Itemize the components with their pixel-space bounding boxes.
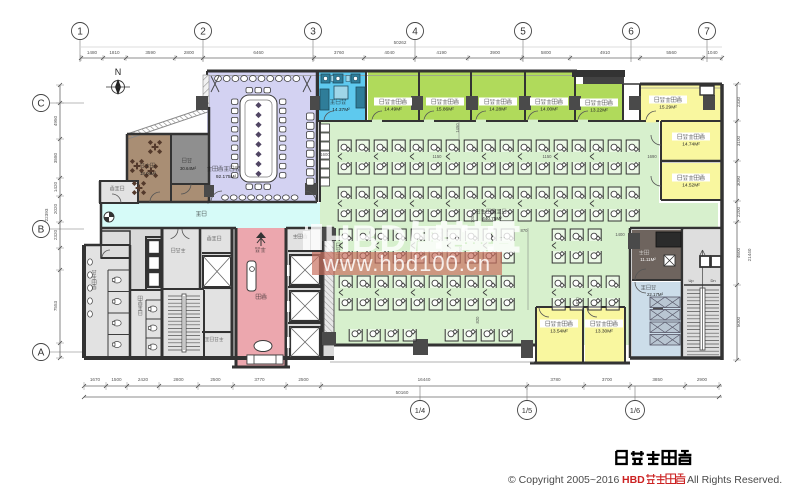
svg-text:14.49M²: 14.49M² <box>384 107 402 113</box>
svg-text:14.37M²: 14.37M² <box>332 107 350 113</box>
svg-text:3590: 3590 <box>145 50 156 55</box>
svg-text:1/6: 1/6 <box>630 406 640 415</box>
svg-text:Dn: Dn <box>710 278 715 283</box>
svg-text:5000: 5000 <box>736 316 741 327</box>
svg-text:50160: 50160 <box>396 390 409 395</box>
svg-text:3900: 3900 <box>490 50 501 55</box>
svg-text:30.64M²: 30.64M² <box>180 166 197 171</box>
svg-text:14.28M²: 14.28M² <box>489 107 507 113</box>
svg-text:4: 4 <box>412 27 418 38</box>
svg-text:4950: 4950 <box>53 115 58 126</box>
svg-text:3760: 3760 <box>334 50 345 55</box>
svg-text:3770: 3770 <box>254 377 265 382</box>
svg-text:2200: 2200 <box>736 206 741 217</box>
svg-text:4600: 4600 <box>736 247 741 258</box>
svg-text:1150: 1150 <box>542 154 552 159</box>
svg-text:1600: 1600 <box>320 152 330 157</box>
svg-text:www.hbd100.cn: www.hbd100.cn <box>322 251 491 276</box>
svg-text:14.00M²: 14.00M² <box>540 107 558 113</box>
svg-text:7: 7 <box>704 27 710 38</box>
svg-text:3700: 3700 <box>602 377 613 382</box>
svg-text:6: 6 <box>628 27 634 38</box>
svg-text:A: A <box>38 348 45 359</box>
svg-text:92.175M²: 92.175M² <box>216 174 237 180</box>
svg-text:11.11M²: 11.11M² <box>640 257 656 262</box>
svg-text:1/4: 1/4 <box>415 406 425 415</box>
svg-text:5800: 5800 <box>541 50 552 55</box>
svg-text:14.52M²: 14.52M² <box>682 183 700 189</box>
svg-text:1500: 1500 <box>111 377 122 382</box>
svg-text:N: N <box>115 67 122 77</box>
svg-text:5: 5 <box>520 27 526 38</box>
svg-text:3850: 3850 <box>652 377 663 382</box>
svg-text:© Copyright 2005~2016: © Copyright 2005~2016 <box>508 474 620 486</box>
svg-text:1000: 1000 <box>470 213 475 223</box>
svg-text:2020: 2020 <box>53 203 58 214</box>
svg-text:4190: 4190 <box>436 50 447 55</box>
svg-text:1810: 1810 <box>109 50 120 55</box>
svg-text:2800: 2800 <box>173 377 184 382</box>
svg-text:16440: 16440 <box>418 377 431 382</box>
svg-text:15.86M²: 15.86M² <box>436 107 454 113</box>
svg-text:13.22M²: 13.22M² <box>590 108 608 114</box>
svg-text:2800: 2800 <box>184 50 195 55</box>
svg-text:1870: 1870 <box>575 297 580 307</box>
svg-text:3780: 3780 <box>550 377 561 382</box>
svg-text:1400: 1400 <box>615 232 625 237</box>
svg-text:B: B <box>38 225 45 236</box>
svg-text:21440: 21440 <box>747 248 752 261</box>
svg-text:2500: 2500 <box>298 377 309 382</box>
svg-text:2320: 2320 <box>53 229 58 240</box>
svg-text:3580: 3580 <box>53 152 58 163</box>
svg-text:1150: 1150 <box>432 154 442 159</box>
svg-text:4910: 4910 <box>600 50 611 55</box>
svg-text:1670: 1670 <box>90 377 101 382</box>
svg-text:2500: 2500 <box>210 377 221 382</box>
svg-text:7553: 7553 <box>53 300 58 311</box>
svg-text:870: 870 <box>521 228 529 233</box>
svg-text:All Rights Reserved.: All Rights Reserved. <box>687 474 782 486</box>
svg-text:1420: 1420 <box>53 181 58 192</box>
svg-text:HBD: HBD <box>622 474 645 486</box>
svg-text:3090: 3090 <box>736 175 741 186</box>
svg-text:15.29M²: 15.29M² <box>659 105 677 111</box>
svg-text:3100: 3100 <box>736 135 741 146</box>
svg-text:18.06M²: 18.06M² <box>140 171 157 176</box>
svg-text:1: 1 <box>77 27 83 38</box>
svg-text:6460: 6460 <box>253 50 264 55</box>
svg-text:14.74M²: 14.74M² <box>682 142 700 148</box>
svg-text:2420: 2420 <box>138 377 149 382</box>
svg-text:13.54M²: 13.54M² <box>550 329 568 335</box>
svg-text:820: 820 <box>475 316 480 324</box>
svg-text:1690: 1690 <box>647 154 657 159</box>
svg-text:2: 2 <box>200 27 206 38</box>
svg-text:1040: 1040 <box>707 50 718 55</box>
svg-text:13.30M²: 13.30M² <box>595 329 613 335</box>
svg-text:440.75M²: 440.75M² <box>482 216 502 221</box>
svg-text:1480: 1480 <box>87 50 98 55</box>
svg-text:2330: 2330 <box>736 96 741 107</box>
svg-text:1/5: 1/5 <box>522 406 532 415</box>
svg-text:50262: 50262 <box>394 40 407 45</box>
svg-text:5560: 5560 <box>666 50 677 55</box>
svg-text:3: 3 <box>310 27 316 38</box>
svg-text:Up: Up <box>688 278 694 283</box>
svg-text:2900: 2900 <box>697 377 708 382</box>
svg-text:22.17M²: 22.17M² <box>647 292 664 297</box>
svg-text:4040: 4040 <box>384 50 395 55</box>
svg-text:22393: 22393 <box>44 208 49 221</box>
svg-text:C: C <box>37 99 44 110</box>
svg-text:1450: 1450 <box>455 123 460 133</box>
